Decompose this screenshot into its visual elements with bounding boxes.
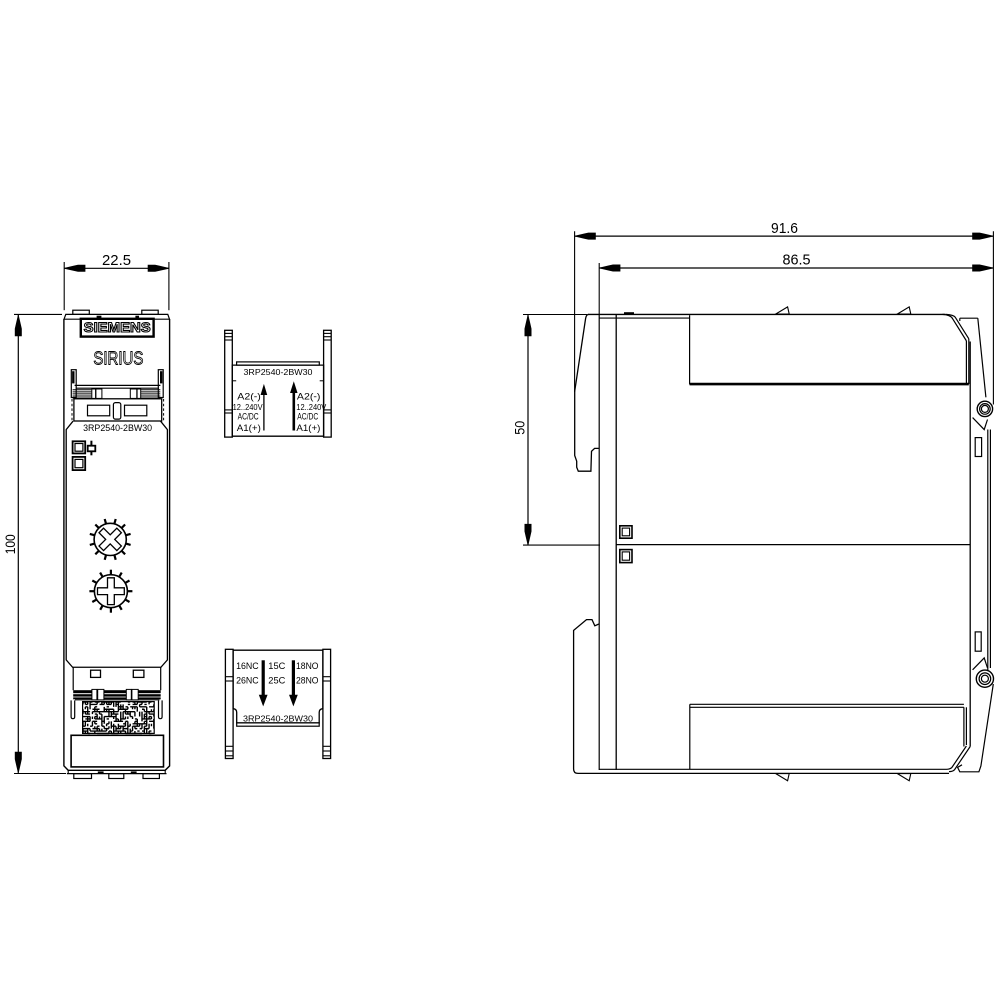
- svg-text:A1(+): A1(+): [296, 422, 320, 433]
- svg-text:50: 50: [511, 421, 527, 435]
- svg-text:12..240V: 12..240V: [233, 402, 263, 412]
- svg-text:A2(-): A2(-): [237, 391, 260, 402]
- svg-text:26NC: 26NC: [236, 674, 259, 685]
- svg-text:16NC: 16NC: [236, 660, 259, 671]
- svg-text:SIEMENS: SIEMENS: [84, 320, 151, 335]
- svg-text:SIRIUS: SIRIUS: [93, 348, 143, 368]
- svg-text:12..240V: 12..240V: [296, 402, 326, 412]
- svg-text:18NO: 18NO: [296, 660, 319, 671]
- svg-text:AC/DC: AC/DC: [238, 412, 259, 422]
- svg-text:25C: 25C: [268, 674, 285, 685]
- svg-text:3RP2540-2BW30: 3RP2540-2BW30: [243, 713, 313, 723]
- svg-text:28NO: 28NO: [296, 674, 319, 685]
- svg-text:100: 100: [2, 534, 18, 554]
- svg-text:AC/DC: AC/DC: [297, 412, 318, 422]
- svg-text:86.5: 86.5: [783, 252, 811, 269]
- svg-text:A1(+): A1(+): [237, 422, 261, 433]
- svg-text:A2(-): A2(-): [297, 391, 321, 402]
- svg-text:22.5: 22.5: [102, 252, 131, 269]
- svg-text:3RP2540-2BW30: 3RP2540-2BW30: [83, 423, 152, 433]
- svg-text:91.6: 91.6: [771, 220, 798, 237]
- svg-text:3RP2540-2BW30: 3RP2540-2BW30: [244, 367, 313, 377]
- svg-text:15C: 15C: [268, 660, 285, 671]
